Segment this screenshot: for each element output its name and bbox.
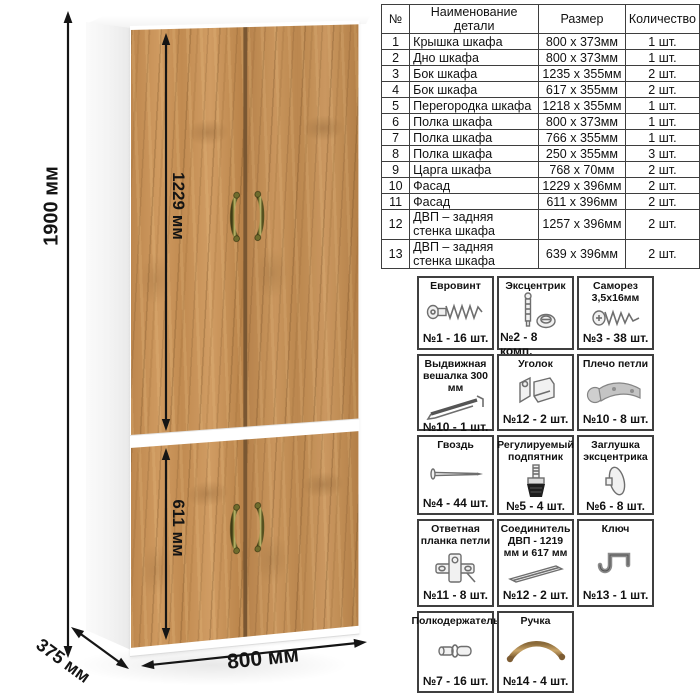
part-number: 1: [382, 34, 410, 50]
part-number: 13: [382, 239, 410, 268]
hardware-title: Ключ: [602, 523, 630, 535]
part-name: Фасад: [410, 178, 539, 194]
part-qty: 2 шт.: [625, 82, 699, 98]
door-handle: [228, 503, 241, 555]
hex-key-icon: [594, 545, 638, 579]
hardware-qty: №12 - 2 шт.: [503, 588, 569, 603]
hardware-qty: №1 - 16 шт.: [423, 331, 489, 346]
shelf-pin-icon: [435, 642, 477, 660]
hardware-title: Уголок: [518, 358, 553, 370]
hardware-cell-bracket: Уголок №12 - 2 шт.: [497, 354, 574, 431]
part-size: 1229 х 396мм: [539, 178, 626, 194]
hardware-title: Регулируемый подпятник: [497, 439, 574, 463]
hardware-qty: №4 - 44 шт.: [423, 496, 489, 511]
hardware-cell-hinge-arm: Плечо петли №10 - 8 шт.: [577, 354, 654, 431]
part-number: 8: [382, 146, 410, 162]
hardware-title: Ручка: [520, 615, 550, 627]
parts-table-header-row: № Наименование детали Размер Количество: [382, 5, 700, 34]
hardware-cell-nail: Гвоздь №4 - 44 шт.: [417, 435, 494, 515]
header-size: Размер: [539, 5, 626, 34]
hardware-title: Ответная планка петли: [420, 523, 491, 547]
part-qty: 1 шт.: [625, 130, 699, 146]
hardware-grid: Евровинт №1 - 16 шт. Эксцентрик №2 - 8 к…: [417, 276, 654, 693]
hardware-cell-hdf-connector: Соединитель ДВП - 1219 мм и 617 мм №12 -…: [497, 519, 574, 607]
part-row: 13 ДВП – задняя стенка шкафа 639 х 396мм…: [382, 239, 700, 268]
part-row: 10 Фасад 1229 х 396мм 2 шт.: [382, 178, 700, 194]
hardware-cell-hinge-plate: Ответная планка петли №11 - 8 шт.: [417, 519, 494, 607]
hardware-cell-shelf-pin: Полкодержатель №7 - 16 шт.: [417, 611, 494, 693]
hinge-arm-icon: [586, 376, 646, 406]
header-part-name: Наименование детали: [410, 5, 539, 34]
dimension-arrow-height: [64, 11, 73, 658]
part-size: 768 х 70мм: [539, 162, 626, 178]
hardware-title: Полкодержатель: [411, 615, 499, 627]
hardware-title: Плечо петли: [583, 358, 648, 370]
part-name: Полка шкафа: [410, 130, 539, 146]
part-number: 3: [382, 66, 410, 82]
part-qty: 2 шт.: [625, 210, 699, 239]
part-qty: 2 шт.: [625, 239, 699, 268]
hardware-title: Заглушка эксцентрика: [580, 439, 651, 463]
hdf-connector-icon: [506, 564, 566, 584]
part-qty: 1 шт.: [625, 98, 699, 114]
part-size: 617 х 355мм: [539, 82, 626, 98]
part-size: 639 х 396мм: [539, 239, 626, 268]
part-qty: 1 шт.: [625, 114, 699, 130]
part-name: Полка шкафа: [410, 146, 539, 162]
hardware-qty: №14 - 4 шт.: [503, 674, 569, 689]
assembly-sheet: 1900 мм 1229 мм 611 мм 800 мм 375 мм № Н…: [0, 0, 700, 700]
door-handle: [254, 190, 266, 242]
part-name: ДВП – задняя стенка шкафа: [410, 239, 539, 268]
part-name: Царга шкафа: [410, 162, 539, 178]
adjustable-foot-icon: [519, 463, 553, 499]
part-size: 800 х 373мм: [539, 34, 626, 50]
part-number: 10: [382, 178, 410, 194]
header-quantity: Количество: [625, 5, 699, 34]
part-name: Перегородка шкафа: [410, 98, 539, 114]
part-number: 5: [382, 98, 410, 114]
hardware-title: Саморез 3,5х16мм: [580, 280, 651, 304]
part-number: 9: [382, 162, 410, 178]
part-number: 11: [382, 194, 410, 210]
header-number: №: [382, 5, 410, 34]
hardware-cell-cam-cover: Заглушка эксцентрика №6 - 8 шт.: [577, 435, 654, 515]
part-number: 2: [382, 50, 410, 66]
part-size: 766 х 355мм: [539, 130, 626, 146]
dimension-label-height: 1900 мм: [41, 166, 64, 246]
door-seam-lower: [243, 439, 247, 637]
hardware-qty: №13 - 1 шт.: [583, 588, 649, 603]
part-row: 2 Дно шкафа 800 х 373мм 1 шт.: [382, 50, 700, 66]
part-qty: 3 шт.: [625, 146, 699, 162]
part-size: 250 х 355мм: [539, 146, 626, 162]
dimension-label-upper-door: 1229 мм: [168, 172, 188, 240]
hardware-qty: №12 - 2 шт.: [503, 412, 569, 427]
part-row: 3 Бок шкафа 1235 х 355мм 2 шт.: [382, 66, 700, 82]
part-qty: 2 шт.: [625, 194, 699, 210]
part-row: 8 Полка шкафа 250 х 355мм 3 шт.: [382, 146, 700, 162]
part-row: 9 Царга шкафа 768 х 70мм 2 шт.: [382, 162, 700, 178]
wardrobe-front: [130, 20, 359, 656]
hardware-title: Выдвижная вешалка 300 мм: [420, 358, 491, 394]
self-tapping-screw-icon: [591, 307, 641, 329]
hardware-qty: №5 - 4 шт.: [506, 499, 565, 514]
hardware-qty: №6 - 8 шт.: [586, 499, 645, 514]
part-name: Дно шкафа: [410, 50, 539, 66]
part-name: Полка шкафа: [410, 114, 539, 130]
wardrobe-side-panel: [84, 20, 131, 654]
corner-bracket-icon: [514, 375, 558, 407]
part-size: 611 х 396мм: [539, 194, 626, 210]
part-qty: 1 шт.: [625, 34, 699, 50]
part-row: 1 Крышка шкафа 800 х 373мм 1 шт.: [382, 34, 700, 50]
part-number: 6: [382, 114, 410, 130]
part-size: 1257 х 396мм: [539, 210, 626, 239]
part-number: 7: [382, 130, 410, 146]
part-name: Бок шкафа: [410, 66, 539, 82]
hardware-qty: №3 - 38 шт.: [583, 331, 649, 346]
hardware-cell-hanger: Выдвижная вешалка 300 мм №10 - 1 шт.: [417, 354, 494, 431]
part-number: 4: [382, 82, 410, 98]
part-name: ДВП – задняя стенка шкафа: [410, 210, 539, 239]
part-qty: 2 шт.: [625, 178, 699, 194]
part-size: 800 х 373мм: [539, 114, 626, 130]
part-name: Фасад: [410, 194, 539, 210]
pullout-hanger-icon: [425, 394, 487, 420]
part-row: 12 ДВП – задняя стенка шкафа 1257 х 396м…: [382, 210, 700, 239]
hardware-cell-key: Ключ №13 - 1 шт.: [577, 519, 654, 607]
door-handle: [228, 191, 241, 243]
hinge-plate-icon: [433, 551, 479, 585]
door-seam-upper: [243, 27, 247, 427]
part-size: 1218 х 355мм: [539, 98, 626, 114]
part-number: 12: [382, 210, 410, 239]
part-name: Крышка шкафа: [410, 34, 539, 50]
door-handle: [254, 501, 266, 553]
cam-cover-icon: [602, 463, 630, 499]
part-size: 1235 х 355мм: [539, 66, 626, 82]
part-row: 5 Перегородка шкафа 1218 х 355мм 1 шт.: [382, 98, 700, 114]
part-row: 11 Фасад 611 х 396мм 2 шт.: [382, 194, 700, 210]
hardware-qty: №10 - 8 шт.: [583, 412, 649, 427]
part-size: 800 х 373мм: [539, 50, 626, 66]
part-row: 7 Полка шкафа 766 х 355мм 1 шт.: [382, 130, 700, 146]
parts-table: № Наименование детали Размер Количество …: [381, 4, 700, 269]
dimension-label-lower-door: 611 мм: [168, 499, 188, 556]
hardware-qty: №7 - 16 шт.: [423, 674, 489, 689]
hardware-qty: №10 - 1 шт.: [423, 420, 489, 435]
part-row: 4 Бок шкафа 617 х 355мм 2 шт.: [382, 82, 700, 98]
part-name: Бок шкафа: [410, 82, 539, 98]
hardware-title: Гвоздь: [437, 439, 474, 451]
hardware-cell-eccentric: Эксцентрик №2 - 8 комп.: [497, 276, 574, 350]
part-qty: 2 шт.: [625, 66, 699, 82]
part-qty: 2 шт.: [625, 162, 699, 178]
eccentric-cam-icon: [514, 292, 558, 330]
hardware-cell-foot: Регулируемый подпятник №5 - 4 шт.: [497, 435, 574, 515]
part-qty: 1 шт.: [625, 50, 699, 66]
hardware-cell-eurovint: Евровинт №1 - 16 шт.: [417, 276, 494, 350]
hardware-qty: №11 - 8 шт.: [423, 588, 488, 603]
hardware-cell-handle: Ручка №14 - 4 шт.: [497, 611, 574, 693]
part-row: 6 Полка шкафа 800 х 373мм 1 шт.: [382, 114, 700, 130]
hardware-title: Эксцентрик: [505, 280, 565, 292]
euro-screw-icon: [426, 301, 486, 323]
handle-icon: [505, 636, 567, 666]
nail-icon: [427, 467, 485, 481]
hardware-title: Евровинт: [430, 280, 481, 292]
hardware-title: Соединитель ДВП - 1219 мм и 617 мм: [500, 523, 571, 559]
hardware-cell-screw: Саморез 3,5х16мм №3 - 38 шт.: [577, 276, 654, 350]
